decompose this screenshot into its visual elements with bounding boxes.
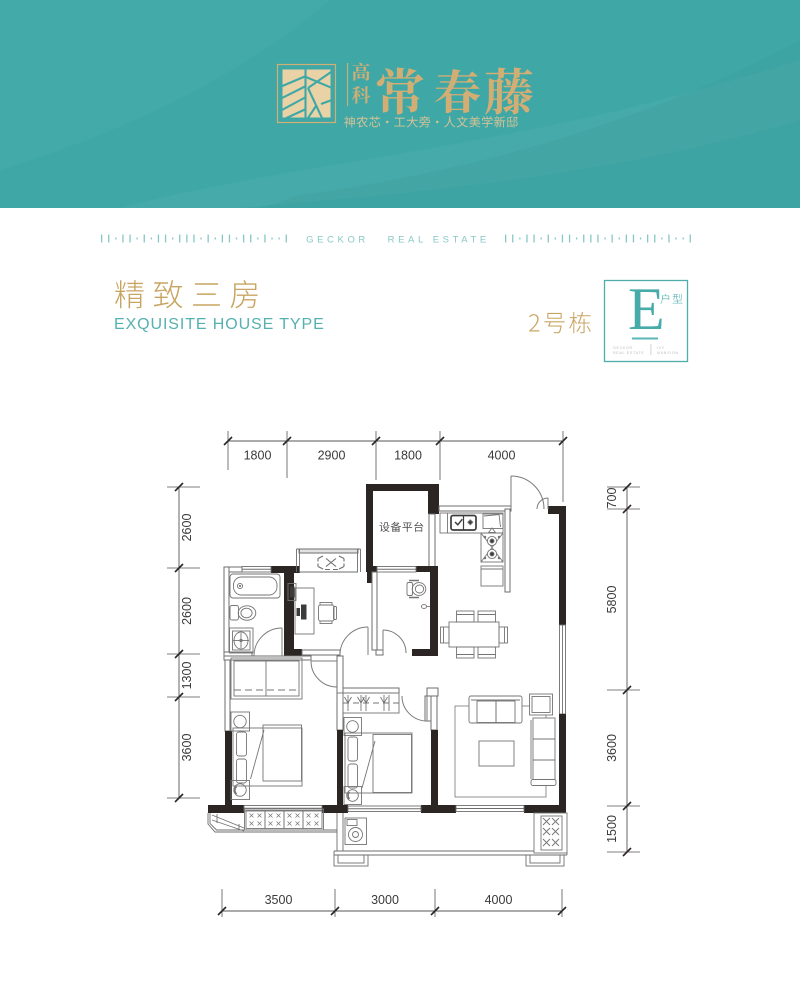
svg-text:IVY: IVY <box>657 346 665 350</box>
svg-text:EXQUISITE HOUSE TYPE: EXQUISITE HOUSE TYPE <box>114 316 325 333</box>
svg-text:700: 700 <box>605 488 619 509</box>
svg-text:2600: 2600 <box>180 597 194 625</box>
svg-text:4000: 4000 <box>488 449 516 463</box>
svg-text:3000: 3000 <box>371 893 399 907</box>
svg-text:4000: 4000 <box>485 893 513 907</box>
svg-text:GECKOR REAL ESTATE: GECKOR REAL ESTATE <box>306 235 490 246</box>
svg-text:3600: 3600 <box>605 734 619 762</box>
svg-text:1800: 1800 <box>394 449 422 463</box>
svg-text:5800: 5800 <box>605 586 619 614</box>
svg-text:1500: 1500 <box>605 815 619 843</box>
svg-text:2600: 2600 <box>180 514 194 542</box>
svg-text:REAL ESTATE: REAL ESTATE <box>613 351 644 355</box>
svg-text:MANSION: MANSION <box>657 351 679 355</box>
svg-text:GECKOR: GECKOR <box>613 346 633 350</box>
svg-text:3600: 3600 <box>180 734 194 762</box>
svg-text:1300: 1300 <box>180 662 194 690</box>
svg-text:1800: 1800 <box>244 449 272 463</box>
svg-text:2900: 2900 <box>318 449 346 463</box>
svg-text:3500: 3500 <box>265 893 293 907</box>
svg-text:E: E <box>628 276 665 342</box>
